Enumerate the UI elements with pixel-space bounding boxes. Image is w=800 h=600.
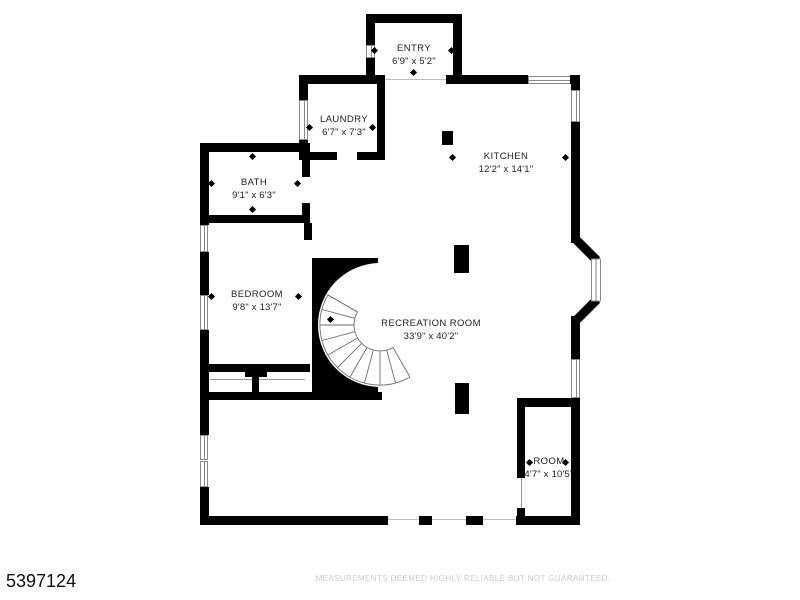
wall-segment bbox=[366, 14, 375, 45]
room-label-kitchen: KITCHEN 12'2" x 14'1" bbox=[479, 150, 534, 176]
wall-segment bbox=[453, 14, 462, 81]
wall-segment bbox=[571, 82, 580, 90]
floor-plan: ENTRY 6'9" x 5'2" LAUNDRY 6'7" x 7'3" KI… bbox=[0, 0, 800, 600]
room-dims: 6'7" x 7'3" bbox=[320, 126, 368, 139]
wall-segment bbox=[200, 487, 209, 525]
listing-id: 5397124 bbox=[6, 571, 76, 592]
window bbox=[200, 435, 208, 460]
room-label-bedroom: BEDROOM 9'8" x 13'7" bbox=[231, 288, 283, 314]
room-name: ENTRY bbox=[392, 42, 436, 55]
room-dims: 9'8" x 13'7" bbox=[231, 301, 283, 314]
wall-segment bbox=[200, 516, 388, 525]
room-name: BATH bbox=[232, 176, 276, 189]
wall-segment bbox=[466, 516, 483, 525]
wall-segment bbox=[200, 252, 209, 295]
opening-threshold-line bbox=[382, 79, 446, 80]
wall-segment bbox=[516, 516, 580, 525]
room-dims: 33'9" x 40'2" bbox=[381, 330, 481, 343]
room-dims: 4'7" x 10'5" bbox=[524, 468, 573, 481]
room-name: ROOM bbox=[524, 455, 573, 468]
room-name: KITCHEN bbox=[479, 150, 534, 163]
wall-segment bbox=[571, 122, 580, 243]
wall-segment bbox=[419, 516, 432, 525]
dimension-arrow-marker bbox=[369, 124, 376, 131]
window bbox=[571, 90, 580, 122]
column bbox=[454, 245, 469, 273]
dimension-arrow-marker bbox=[294, 180, 301, 187]
opening-threshold-line bbox=[432, 519, 466, 520]
bay-window bbox=[560, 230, 610, 330]
room-label-bath: BATH 9'1" x 6'3" bbox=[232, 176, 276, 202]
window bbox=[571, 359, 580, 398]
dimension-arrow-marker bbox=[249, 206, 256, 213]
room-label-entry: ENTRY 6'9" x 5'2" bbox=[392, 42, 436, 68]
dimension-arrow-marker bbox=[410, 69, 417, 76]
window bbox=[299, 100, 308, 140]
disclaimer-text: MEASUREMENTS DEEMED HIGHLY RELIABLE BUT … bbox=[316, 574, 611, 583]
wall-segment bbox=[200, 215, 310, 223]
dimension-arrow-marker bbox=[249, 153, 256, 160]
room-label-recreation-room: RECREATION ROOM 33'9" x 40'2" bbox=[381, 317, 481, 343]
window bbox=[200, 461, 208, 487]
room-dims: 9'1" x 6'3" bbox=[232, 189, 276, 202]
dimension-arrow-marker bbox=[295, 293, 302, 300]
wall-segment bbox=[517, 398, 580, 407]
wall-segment bbox=[302, 203, 310, 215]
room-dims: 12'2" x 14'1" bbox=[479, 163, 534, 176]
dimension-arrow-marker bbox=[208, 180, 215, 187]
column bbox=[442, 131, 453, 145]
wall-segment bbox=[245, 370, 267, 377]
room-name: LAUNDRY bbox=[320, 113, 368, 126]
dimension-arrow-marker bbox=[449, 154, 456, 161]
room-label-room: ROOM 4'7" x 10'5" bbox=[524, 455, 573, 481]
wall-segment bbox=[366, 14, 462, 23]
wall-segment bbox=[446, 75, 528, 84]
wall-segment bbox=[200, 330, 209, 435]
room-label-laundry: LAUNDRY 6'7" x 7'3" bbox=[320, 113, 368, 139]
wall-segment bbox=[571, 316, 580, 359]
dimension-arrow-marker bbox=[562, 154, 569, 161]
wall-segment bbox=[299, 75, 382, 84]
wall-segment bbox=[200, 143, 310, 152]
room-dims: 6'9" x 5'2" bbox=[392, 55, 436, 68]
dimension-arrow-marker bbox=[208, 293, 215, 300]
opening-threshold-line bbox=[483, 519, 516, 520]
room-name: RECREATION ROOM bbox=[381, 317, 481, 330]
wall-segment bbox=[299, 75, 308, 100]
wall-segment bbox=[304, 223, 312, 240]
window bbox=[200, 295, 208, 330]
wall-segment bbox=[377, 75, 385, 160]
door-line bbox=[521, 478, 522, 510]
window bbox=[200, 225, 208, 252]
column bbox=[455, 383, 469, 414]
window bbox=[528, 76, 572, 84]
wall-segment bbox=[302, 143, 310, 177]
opening-threshold-line bbox=[388, 519, 419, 520]
room-name: BEDROOM bbox=[231, 288, 283, 301]
